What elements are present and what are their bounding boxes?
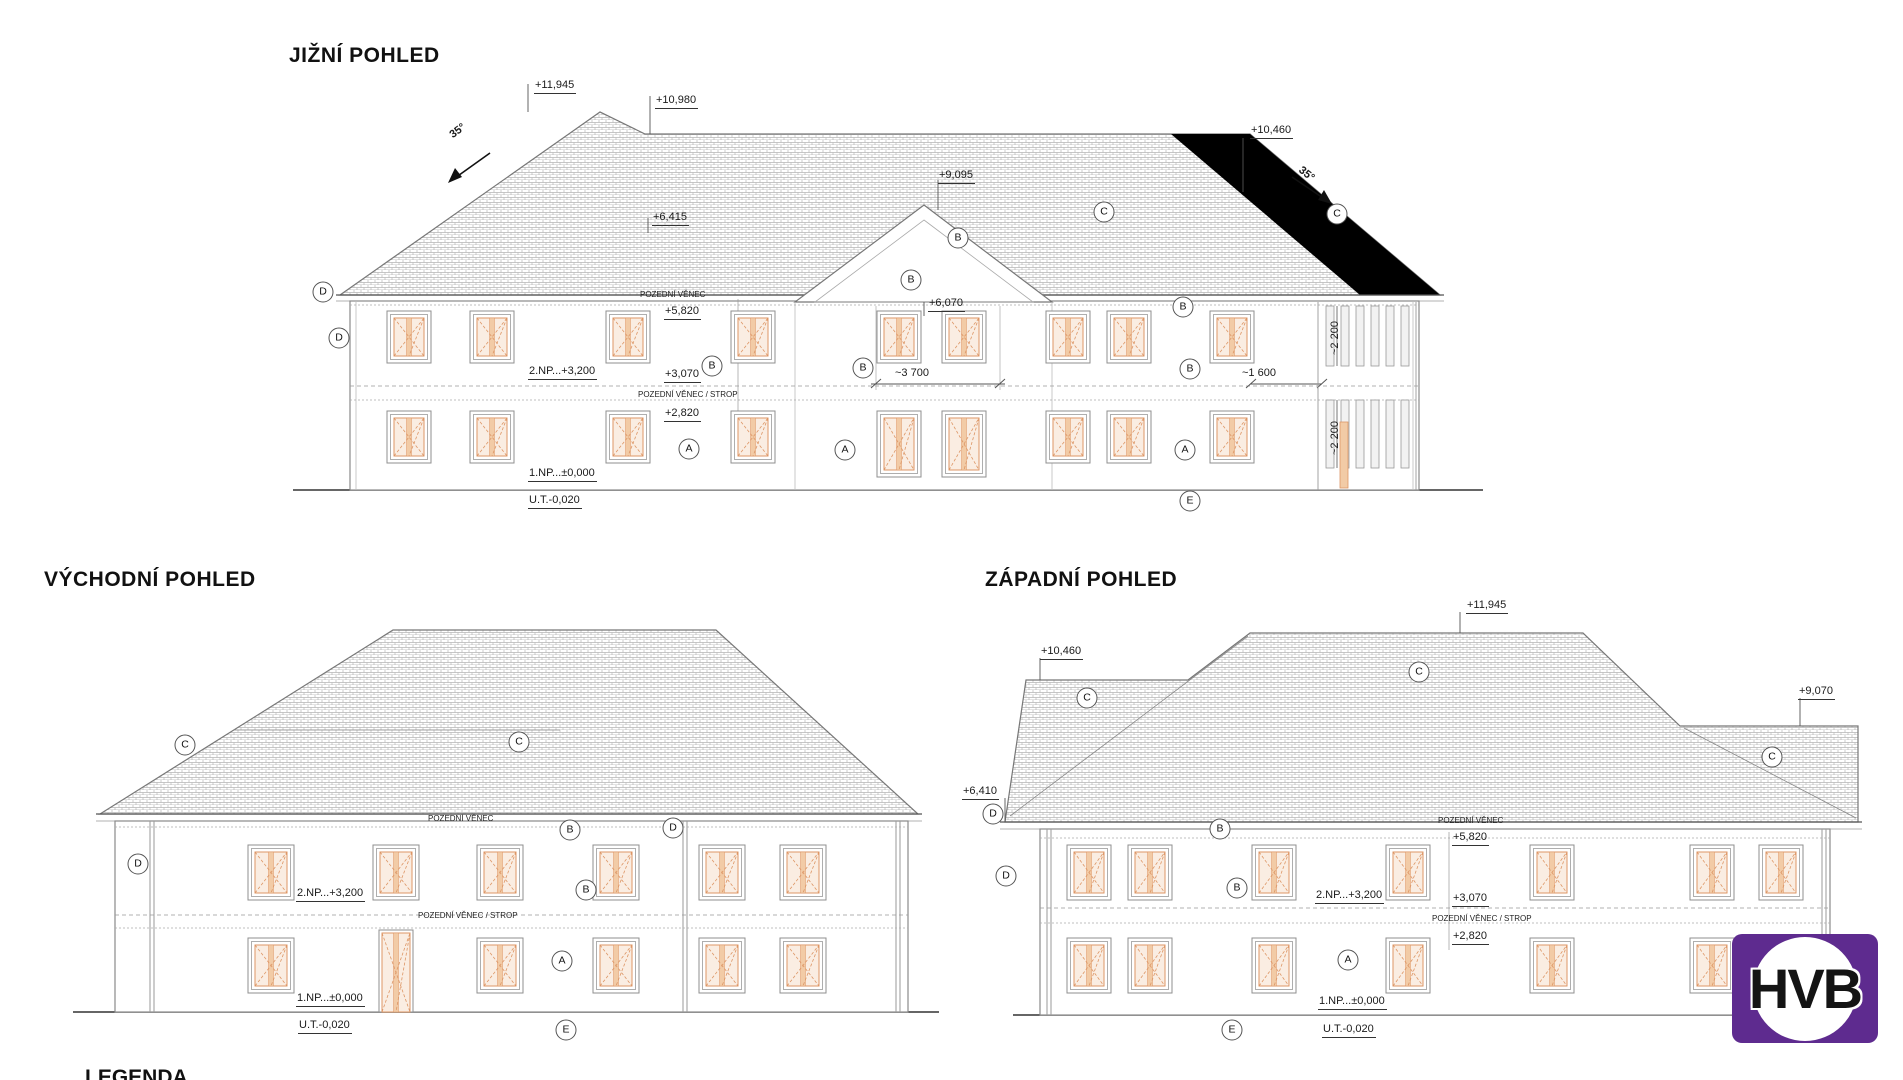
window bbox=[731, 411, 775, 463]
level-label-10460-s: +10,460 bbox=[1250, 125, 1293, 139]
level-label-11945-s: +11,945 bbox=[534, 80, 576, 94]
note-pozedni-venec-e: POZEDNÍ VĚNEC bbox=[428, 815, 493, 823]
grid-bubble-a: A bbox=[1338, 950, 1359, 971]
grid-bubble-c: C bbox=[509, 732, 530, 753]
grid-bubble-c: C bbox=[1077, 688, 1098, 709]
window bbox=[248, 845, 294, 900]
grid-bubble-c: C bbox=[1409, 662, 1430, 683]
grid-bubble-b: B bbox=[901, 270, 922, 291]
window bbox=[1386, 845, 1430, 900]
grid-bubble-c: C bbox=[1327, 204, 1348, 225]
grid-bubble-b: B bbox=[1173, 297, 1194, 318]
grid-bubble-d: D bbox=[983, 804, 1004, 825]
slat bbox=[1401, 306, 1409, 366]
window bbox=[387, 411, 431, 463]
window bbox=[1690, 845, 1734, 900]
grid-bubble-b: B bbox=[1227, 878, 1248, 899]
slope-arrow-left bbox=[455, 153, 490, 178]
window bbox=[699, 845, 745, 900]
window bbox=[780, 938, 826, 993]
level-label-2np-s: 2.NP...+3,200 bbox=[528, 366, 597, 380]
hvb-logo: HVB bbox=[1732, 934, 1878, 1043]
west-view-title: ZÁPADNÍ POHLED bbox=[985, 568, 1177, 592]
window bbox=[1386, 938, 1430, 993]
grid-bubble-a: A bbox=[1175, 440, 1196, 461]
drawing-sheet: JIŽNÍ POHLED bbox=[0, 0, 1903, 1080]
slope-arrowhead-left bbox=[448, 168, 462, 183]
window bbox=[1690, 938, 1734, 993]
grid-bubble-d: D bbox=[329, 328, 350, 349]
grid-bubble-c: C bbox=[175, 735, 196, 756]
window bbox=[1759, 845, 1803, 900]
level-label-2np-w: 2.NP...+3,200 bbox=[1315, 890, 1384, 904]
south-view-title: JIŽNÍ POHLED bbox=[289, 44, 440, 68]
window bbox=[477, 938, 523, 993]
level-label-3070-s: +3,070 bbox=[664, 369, 701, 383]
window bbox=[942, 411, 986, 477]
window bbox=[593, 845, 639, 900]
slat bbox=[1386, 306, 1394, 366]
window bbox=[1107, 411, 1151, 463]
legend-title: LEGENDA bbox=[85, 1066, 188, 1080]
window bbox=[1107, 311, 1151, 363]
slat-door-strip bbox=[1340, 422, 1348, 488]
window bbox=[373, 845, 419, 900]
dim-label-2200-bottom: ~2 200 bbox=[1330, 421, 1341, 455]
grid-bubble-b: B bbox=[1210, 819, 1231, 840]
window bbox=[470, 311, 514, 363]
window bbox=[1210, 311, 1254, 363]
window bbox=[731, 311, 775, 363]
level-label-1np-e: 1.NP...±0,000 bbox=[296, 993, 365, 1007]
grid-bubble-c: C bbox=[1094, 202, 1115, 223]
window bbox=[1252, 845, 1296, 900]
level-label-11945-w: +11,945 bbox=[1466, 600, 1508, 614]
grid-bubble-a: A bbox=[679, 439, 700, 460]
window bbox=[877, 411, 921, 477]
dim-label-3700: ~3 700 bbox=[895, 368, 929, 379]
window bbox=[1530, 938, 1574, 993]
grid-bubble-e: E bbox=[1222, 1020, 1243, 1041]
slat bbox=[1356, 306, 1364, 366]
level-label-5820-w: +5,820 bbox=[1452, 832, 1489, 846]
grid-bubble-b: B bbox=[702, 356, 723, 377]
window bbox=[1252, 938, 1296, 993]
window bbox=[593, 938, 639, 993]
slat bbox=[1371, 306, 1379, 366]
level-label-6070-s: +6,070 bbox=[928, 298, 965, 312]
grid-bubble-b: B bbox=[576, 880, 597, 901]
window bbox=[1046, 311, 1090, 363]
grid-bubble-b: B bbox=[948, 228, 969, 249]
window bbox=[1210, 411, 1254, 463]
slat bbox=[1401, 400, 1409, 468]
slat bbox=[1386, 400, 1394, 468]
level-label-ut-w: U.T.-0,020 bbox=[1322, 1024, 1376, 1038]
level-label-9095-s: +9,095 bbox=[938, 170, 975, 184]
grid-bubble-a: A bbox=[552, 951, 573, 972]
level-label-10460-w: +10,460 bbox=[1040, 646, 1083, 660]
window bbox=[477, 845, 523, 900]
window bbox=[1067, 845, 1111, 900]
grid-bubble-d: D bbox=[128, 854, 149, 875]
window bbox=[248, 938, 294, 993]
grid-bubble-e: E bbox=[1180, 491, 1201, 512]
level-label-3070-w: +3,070 bbox=[1452, 893, 1489, 907]
grid-bubble-b: B bbox=[1180, 359, 1201, 380]
east-elevation-drawing bbox=[40, 600, 960, 1045]
grid-bubble-d: D bbox=[663, 818, 684, 839]
window bbox=[606, 411, 650, 463]
window bbox=[1067, 938, 1111, 993]
grid-bubble-d: D bbox=[996, 866, 1017, 887]
level-label-6415-s: +6,415 bbox=[652, 212, 689, 226]
level-label-ut-e: U.T.-0,020 bbox=[298, 1020, 352, 1034]
west-roof bbox=[1005, 633, 1858, 822]
grid-bubble-c: C bbox=[1762, 747, 1783, 768]
note-pozedni-venec-strop-w: POZEDNÍ VĚNEC / STROP bbox=[1432, 915, 1532, 923]
grid-bubble-a: A bbox=[835, 440, 856, 461]
window bbox=[387, 311, 431, 363]
window bbox=[1046, 411, 1090, 463]
level-label-1np-w: 1.NP...±0,000 bbox=[1318, 996, 1387, 1010]
grid-bubble-d: D bbox=[313, 282, 334, 303]
level-label-ut-s: U.T.-0,020 bbox=[528, 495, 582, 509]
window bbox=[942, 311, 986, 363]
slat bbox=[1371, 400, 1379, 468]
window bbox=[470, 411, 514, 463]
level-label-10980-s: +10,980 bbox=[655, 95, 698, 109]
level-label-2820-w: +2,820 bbox=[1452, 931, 1489, 945]
level-label-5820-s: +5,820 bbox=[664, 306, 701, 320]
grid-bubble-e: E bbox=[556, 1020, 577, 1041]
window bbox=[780, 845, 826, 900]
note-pozedni-venec-strop-e: POZEDNÍ VĚNEC / STROP bbox=[418, 912, 518, 920]
hvb-logo-text: HVB bbox=[1749, 956, 1861, 1021]
grid-bubble-b: B bbox=[853, 358, 874, 379]
window bbox=[877, 311, 921, 363]
note-pozedni-venec-w: POZEDNÍ VĚNEC bbox=[1438, 817, 1503, 825]
level-label-2820-s: +2,820 bbox=[664, 408, 701, 422]
window bbox=[606, 311, 650, 363]
window bbox=[1128, 845, 1172, 900]
window bbox=[1530, 845, 1574, 900]
dim-label-2200-top: ~2 200 bbox=[1330, 321, 1341, 355]
east-view-title: VÝCHODNÍ POHLED bbox=[44, 568, 256, 592]
level-label-9070-w: +9,070 bbox=[1798, 686, 1835, 700]
slat bbox=[1356, 400, 1364, 468]
east-roof bbox=[100, 630, 918, 814]
level-label-1np-s: 1.NP...±0,000 bbox=[528, 468, 597, 482]
south-elevation-drawing bbox=[240, 70, 1500, 515]
window bbox=[699, 938, 745, 993]
slat bbox=[1341, 306, 1349, 366]
note-pozedni-venec-s: POZEDNÍ VĚNEC bbox=[640, 291, 705, 299]
door bbox=[379, 930, 413, 1012]
level-label-6410-w: +6,410 bbox=[962, 786, 999, 800]
dim-label-1600: ~1 600 bbox=[1242, 368, 1276, 379]
window bbox=[1128, 938, 1172, 993]
level-label-2np-e: 2.NP...+3,200 bbox=[296, 888, 365, 902]
note-pozedni-venec-strop-s: POZEDNÍ VĚNEC / STROP bbox=[638, 391, 738, 399]
grid-bubble-b: B bbox=[560, 820, 581, 841]
